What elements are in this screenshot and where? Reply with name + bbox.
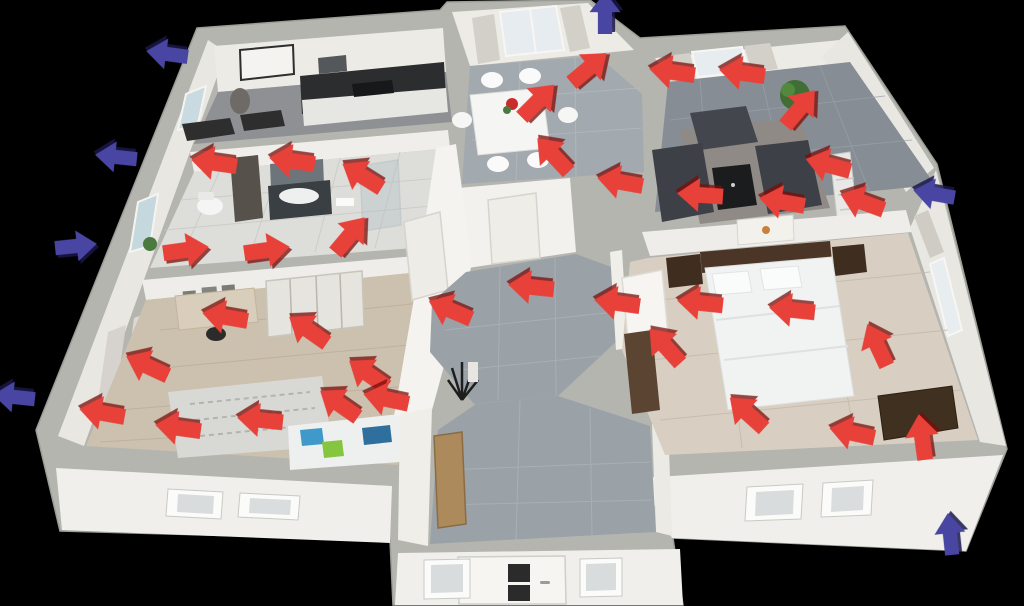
floor-plan-scene — [0, 0, 1024, 606]
bedroom-facade-window-1-glass — [755, 490, 794, 516]
entrance-left-wall — [398, 408, 432, 546]
shower-glass — [360, 160, 401, 231]
nightstand-left — [666, 254, 703, 288]
bedroom-facade-window-2-glass — [831, 486, 864, 512]
bathroom-door — [404, 212, 448, 300]
plant-highlight — [781, 83, 795, 97]
entrance-bench — [434, 432, 466, 528]
kids-bed-pillow-blue — [300, 428, 324, 446]
kitchen-bin — [230, 88, 250, 114]
dining-chair — [487, 156, 509, 172]
nightstand-right — [832, 244, 867, 276]
kids-facade-window-1-glass — [177, 494, 214, 514]
hall-door-north — [488, 193, 540, 264]
desk-chair — [206, 327, 226, 341]
bathroom-tall-cabinet — [230, 155, 263, 222]
kitchen-hood — [318, 55, 347, 74]
coffee-table — [712, 164, 757, 210]
front-door-handle — [540, 581, 550, 584]
dining-chair — [558, 107, 578, 123]
table-decor — [731, 183, 735, 187]
bed-pillow-2 — [760, 266, 802, 290]
picture-figure — [762, 226, 770, 234]
front-door-glass-top — [508, 564, 530, 582]
bed-pillow-1 — [712, 271, 752, 295]
kids-desk — [175, 288, 258, 330]
bathroom-plant — [143, 237, 157, 251]
toilet-tank — [198, 192, 214, 200]
kids-bed-pillow-green — [322, 440, 344, 458]
front-door-glass-bottom — [508, 585, 530, 601]
dining-table — [470, 88, 550, 155]
dining-chair — [452, 112, 472, 128]
kids-wardrobe — [266, 271, 364, 337]
dining-chair — [527, 152, 549, 168]
living-window — [692, 47, 748, 77]
bathroom-sink — [279, 188, 319, 204]
dining-chair — [481, 72, 503, 88]
dining-chair — [519, 68, 541, 84]
entrance-window-left-glass — [431, 564, 463, 593]
kids-facade-window-2-glass — [249, 498, 291, 515]
kitchen-upper-cabinet — [240, 45, 294, 80]
flower-leaves — [503, 106, 511, 114]
kids-bed-pillow-navy — [362, 425, 392, 445]
entrance-window-right-glass — [586, 563, 616, 591]
house-cutaway — [0, 0, 1024, 606]
towel — [336, 198, 354, 206]
